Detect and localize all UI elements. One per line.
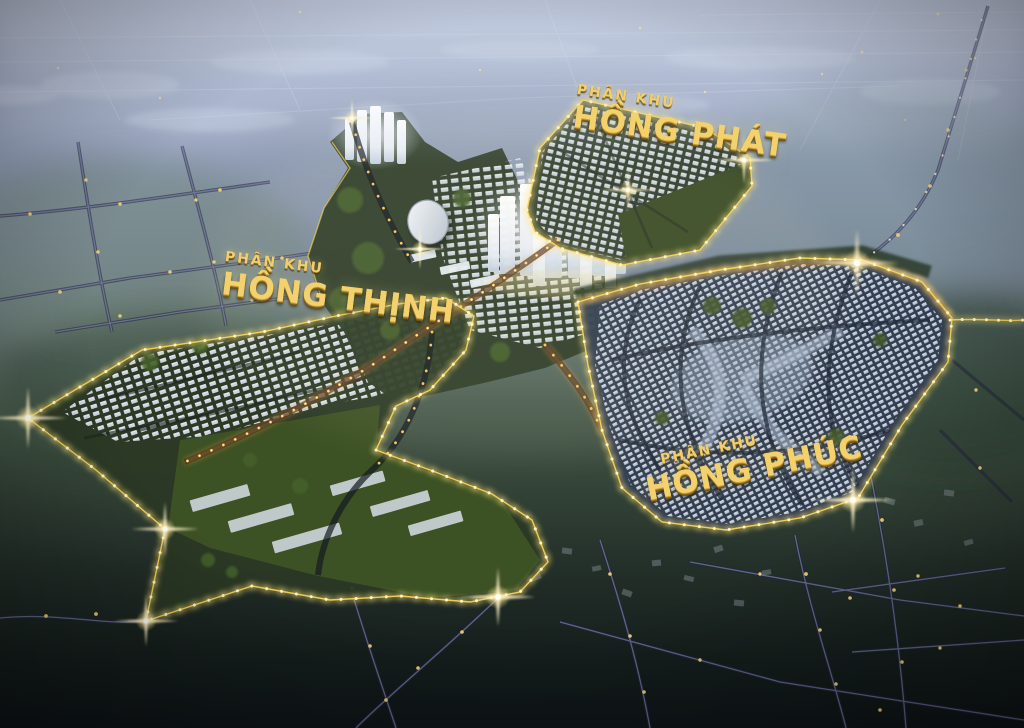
masterplan-render: PHÂN KHU HỒNG PHÁT PHÂN KHU HỒNG THỊNH P…: [0, 0, 1024, 728]
atmosphere-overlays: [0, 0, 1024, 728]
aerial-scene: [0, 0, 1024, 728]
